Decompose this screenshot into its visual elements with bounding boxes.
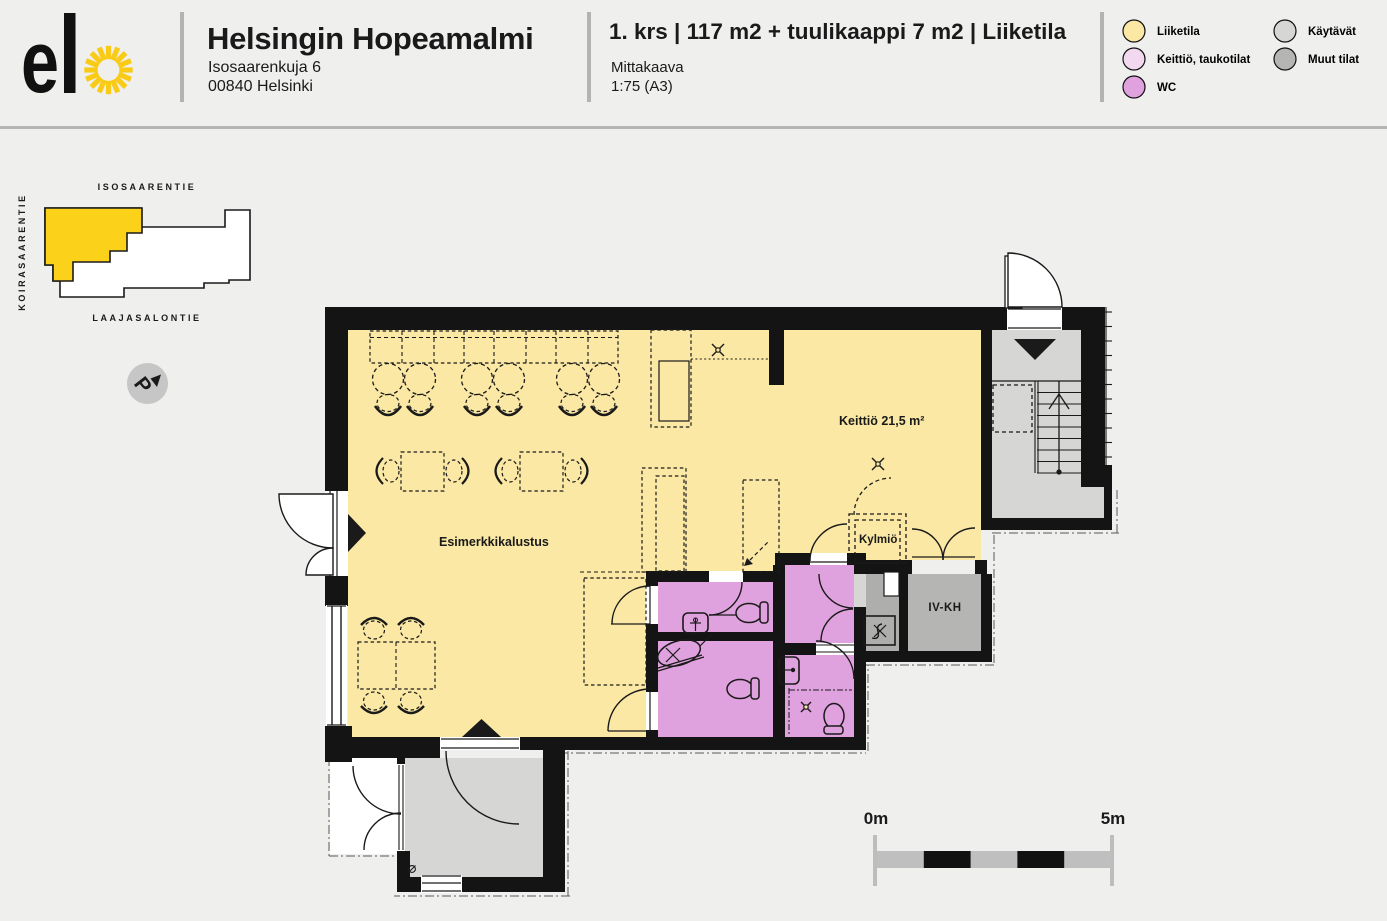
svg-text:KOIRASAARENTIE: KOIRASAARENTIE [17,193,27,310]
svg-text:ISOSAARENTIE: ISOSAARENTIE [98,182,197,192]
svg-text:IV-KH: IV-KH [928,602,961,614]
svg-text:LAAJASALONTIE: LAAJASALONTIE [92,313,201,323]
svg-text:Keittiö 21,5 m²: Keittiö 21,5 m² [839,414,924,428]
svg-text:Kylmiö: Kylmiö [859,534,897,546]
svg-text:5m: 5m [1101,809,1126,828]
svg-text:Esimerkkikalustus: Esimerkkikalustus [439,535,549,549]
svg-text:0m: 0m [864,809,889,828]
